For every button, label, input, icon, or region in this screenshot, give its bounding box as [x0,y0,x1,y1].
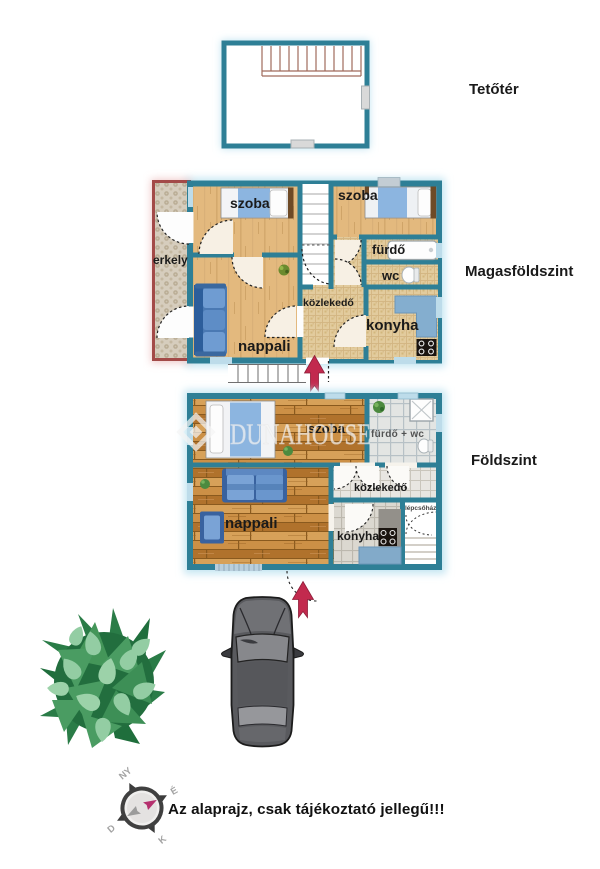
svg-text:Magasföldszint: Magasföldszint [465,263,573,280]
svg-text:Tetőtér: Tetőtér [469,81,519,98]
svg-text:fürdő: fürdő [372,242,405,257]
svg-text:szoba: szoba [338,187,378,203]
svg-text:közlekedő: közlekedő [303,297,354,309]
svg-text:erkely: erkely [153,253,188,267]
svg-text:konyha: konyha [337,529,379,543]
svg-text:fürdő + wc: fürdő + wc [371,429,424,440]
svg-text:Földszint: Földszint [471,452,537,469]
svg-text:wc: wc [381,268,399,283]
svg-text:nappali: nappali [238,338,291,355]
svg-text:DUNAHOUSE: DUNAHOUSE [230,418,371,451]
svg-text:nappali: nappali [225,515,278,532]
svg-text:lépcsőház: lépcsőház [405,505,437,512]
svg-text:szoba: szoba [230,195,270,211]
svg-text:konyha: konyha [366,317,419,334]
svg-text:közlekedő: közlekedő [354,482,407,494]
svg-text:Az alaprajz, csak tájékoztató: Az alaprajz, csak tájékoztató jellegű!!! [168,801,445,818]
